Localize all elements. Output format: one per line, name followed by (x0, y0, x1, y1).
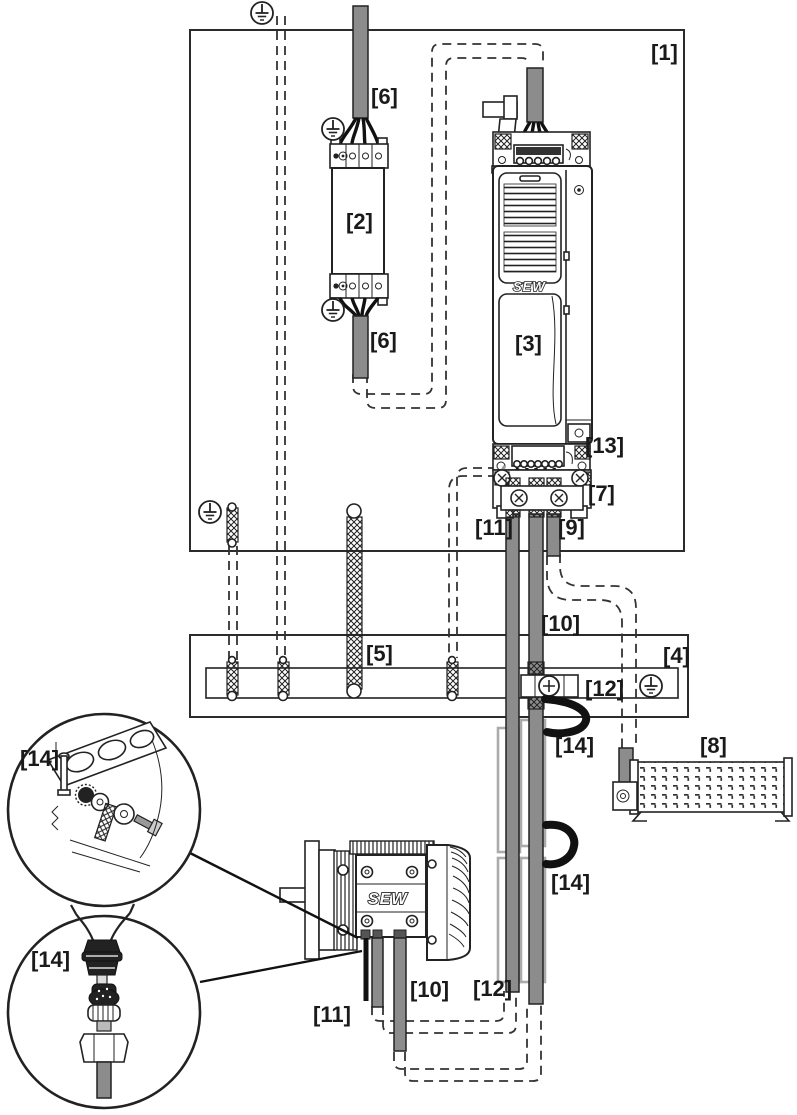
emc-installation-diagram: SEW (0, 0, 797, 1115)
motor-flange (305, 841, 319, 959)
shield-clamp-screw-icon (551, 490, 567, 506)
shield-stub-rail-2 (278, 662, 289, 695)
motor-terminal-box-lid (350, 841, 434, 854)
hex-nut (80, 1034, 128, 1062)
motor-cable-bottom-a (372, 938, 383, 1007)
ground-strap-5 (347, 517, 362, 689)
tray-mesh (637, 762, 785, 812)
ground-symbol-filter-bottom (322, 299, 344, 321)
callout-pointer-bottom (200, 951, 362, 982)
label-cable6-bottom: [6] (370, 328, 397, 353)
inverter-supply-cable (527, 68, 543, 122)
ground-symbol-filter-top (322, 118, 344, 140)
motor-cable-11 (506, 514, 519, 992)
label-cabinet: [1] (651, 40, 678, 65)
shield-stub-rail-3 (447, 662, 458, 695)
detail-callout-emc-gland (8, 904, 200, 1108)
label-loop14-lower: [14] (551, 870, 590, 895)
label-loop14-upper: [14] (555, 733, 594, 758)
clamp-screw-icon (572, 470, 588, 486)
label-strap: [5] (366, 641, 393, 666)
gland-neck (97, 975, 107, 984)
label-clamp12-rail: [12] (585, 676, 624, 701)
route-bottom-u2-a (394, 1003, 527, 1069)
cable-tray-8 (613, 748, 792, 821)
ground-symbol-cabinet (199, 501, 221, 523)
supply-cable-6-bottom (353, 316, 368, 378)
emc-shield-loop-lower (546, 825, 574, 864)
label-inverter: [3] (515, 331, 542, 356)
motor-cable-bottom-10 (394, 938, 406, 1051)
flat-washer-large (114, 804, 134, 824)
gland-cap (84, 940, 120, 952)
motor-brand-logo: SEW (368, 891, 408, 908)
motor-cable-10 (529, 514, 543, 1004)
control-cabinet-outline (190, 30, 684, 551)
label-callout14-bottom: [14] (31, 947, 70, 972)
ground-symbol-rail (640, 675, 662, 697)
shield-stub-cabinet (227, 508, 238, 542)
gland-cable-stub (97, 1062, 111, 1098)
shield-clamp-7 (493, 470, 591, 518)
label-terminal13: [13] (585, 433, 624, 458)
wiring-diagram-page: SEW (0, 0, 797, 1115)
detail-callout-terminal-box (8, 714, 200, 906)
label-cable9: [9] (558, 515, 585, 540)
label-cable11-top: [11] (475, 515, 513, 540)
label-clamp12-bottom: [12] (473, 976, 512, 1001)
label-shield-clamp: [7] (588, 481, 615, 506)
label-callout14-top: [14] (20, 746, 59, 771)
ground-symbol-top (251, 2, 273, 24)
label-cable6-top: [6] (371, 84, 398, 109)
shield-stub-rail-1 (227, 662, 238, 695)
frequency-inverter: SEW (483, 68, 592, 518)
label-tray: [8] (700, 733, 727, 758)
label-cable10-bottom: [10] (410, 977, 449, 1002)
label-rail: [4] (663, 643, 690, 668)
label-filter: [2] (346, 209, 373, 234)
supply-cable-6-top (353, 6, 368, 118)
motor: SEW (280, 841, 470, 1051)
inverter-brand-logo: SEW (513, 279, 546, 294)
label-cable10-top: [10] (541, 611, 580, 636)
shield-clamp-screw-icon (511, 490, 527, 506)
label-cable11-bottom: [11] (313, 1002, 351, 1027)
rail-clamp-screw-icon (539, 676, 559, 696)
